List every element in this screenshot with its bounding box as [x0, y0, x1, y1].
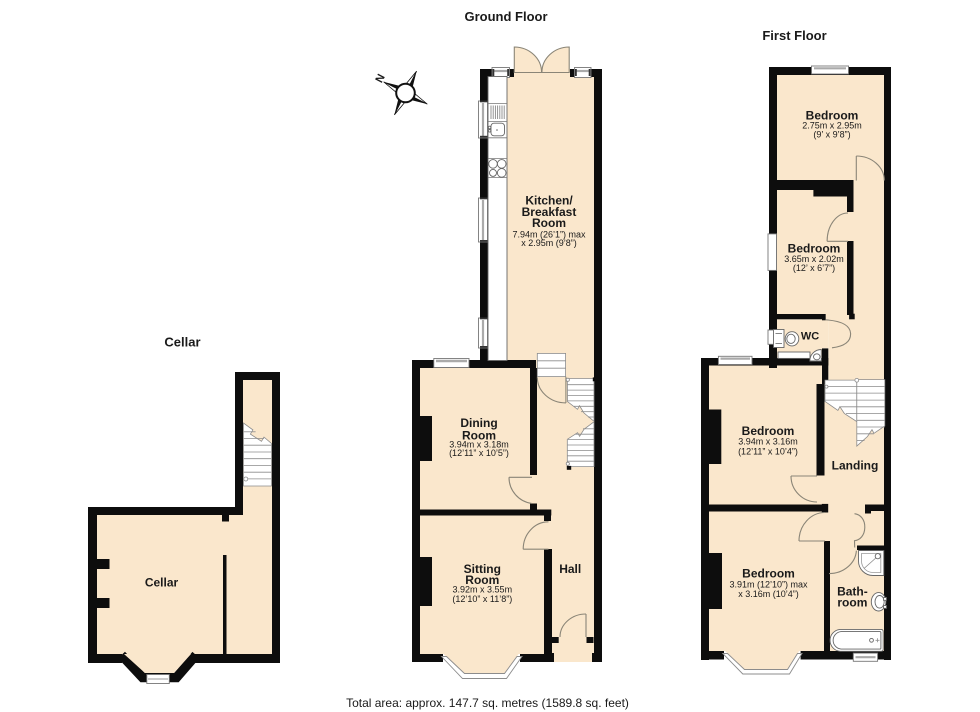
svg-text:room: room [837, 596, 867, 610]
svg-text:(9’ x 9’8”): (9’ x 9’8”) [813, 130, 850, 140]
svg-text:3.94m x 3.16m: 3.94m x 3.16m [738, 437, 798, 447]
svg-text:Cellar: Cellar [164, 335, 200, 350]
svg-text:(12’10” x 11’8”): (12’10” x 11’8”) [452, 594, 512, 604]
svg-text:(12’11” x 10’4”): (12’11” x 10’4”) [738, 446, 798, 456]
svg-text:Hall: Hall [559, 562, 581, 576]
svg-text:Room: Room [532, 216, 566, 230]
svg-text:First Floor: First Floor [762, 28, 826, 43]
svg-text:(12’ x 6’7”): (12’ x 6’7”) [793, 263, 835, 273]
svg-text:Cellar: Cellar [145, 576, 179, 590]
svg-text:(12’11” x 10’5”): (12’11” x 10’5”) [449, 448, 509, 458]
svg-text:WC: WC [801, 331, 819, 343]
svg-text:Ground Floor: Ground Floor [464, 9, 547, 24]
svg-text:x 2.95m (9’8”): x 2.95m (9’8”) [521, 238, 577, 248]
svg-text:x 3.16m (10’4”): x 3.16m (10’4”) [738, 589, 799, 599]
svg-text:3.92m x 3.55m: 3.92m x 3.55m [453, 585, 513, 595]
svg-text:Landing: Landing [832, 459, 879, 473]
svg-text:Total area: approx. 147.7 sq.: Total area: approx. 147.7 sq. metres (15… [346, 696, 629, 710]
svg-text:Bedroom: Bedroom [742, 567, 795, 581]
